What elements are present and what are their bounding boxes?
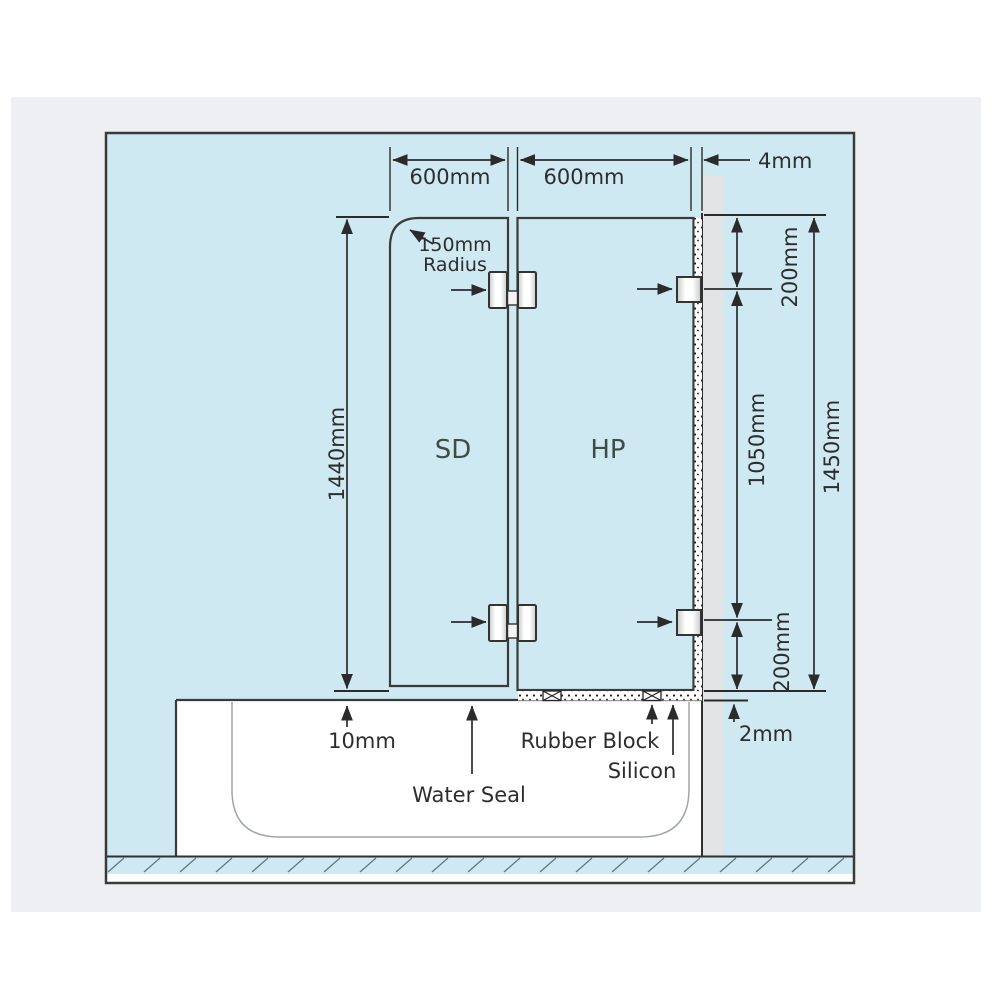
panel-sd-label: SD xyxy=(435,435,472,465)
dim-top-offset-label: 200mm xyxy=(778,227,802,308)
screenshot-canvas: 600mm 600mm 4mm 150mm Radius SD HP 1440m… xyxy=(0,0,1000,1000)
dim-mid-span-label: 1050mm xyxy=(745,393,769,487)
dim-base-gap-label: 2mm xyxy=(739,722,793,746)
dim-bath-gap-label: 10mm xyxy=(328,729,396,753)
rubber-block-left xyxy=(543,691,561,701)
frame-bottom-margin xyxy=(107,874,853,883)
panel-hp-label: HP xyxy=(590,435,625,465)
dim-sd-height-label: 1440mm xyxy=(325,407,349,501)
radius-note: 150mm Radius xyxy=(410,230,492,276)
rubber-block-right xyxy=(643,691,661,701)
radius-value-label: 150mm xyxy=(418,234,491,256)
floor-hatch xyxy=(106,857,854,873)
dim-hp-width-label: 600mm xyxy=(544,165,625,189)
installation-diagram: 600mm 600mm 4mm 150mm Radius SD HP 1440m… xyxy=(0,0,1000,1000)
dim-wall-gap-label: 4mm xyxy=(758,149,812,173)
radius-word-label: Radius xyxy=(423,254,487,276)
dim-sd-width-label: 600mm xyxy=(410,165,491,189)
water-seal-label: Water Seal xyxy=(412,783,526,807)
wall-panel xyxy=(702,176,723,856)
dim-bottom-offset-label: 200mm xyxy=(770,612,794,693)
rubber-block-label: Rubber Block xyxy=(521,729,660,753)
silicon-label: Silicon xyxy=(608,759,677,783)
dim-total-height-label: 1450mm xyxy=(820,400,844,494)
